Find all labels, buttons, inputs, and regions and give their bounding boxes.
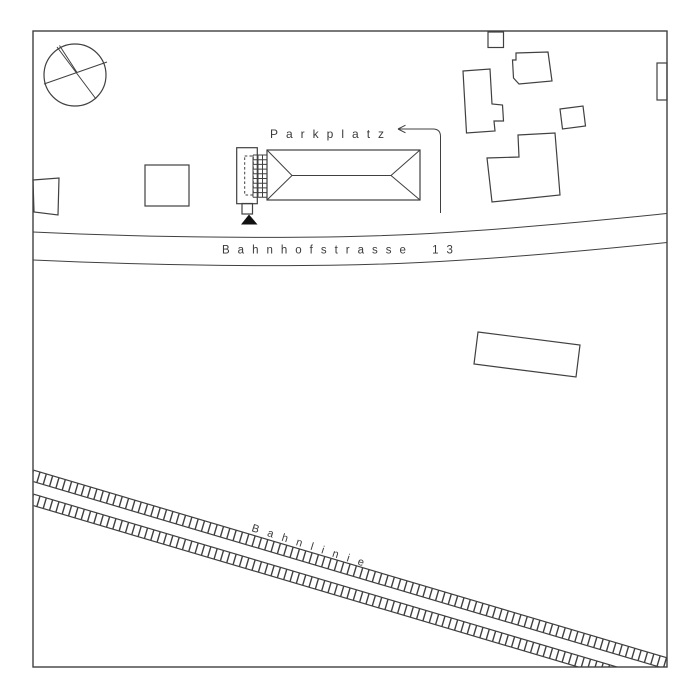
crossed-circle-icon	[44, 44, 107, 106]
annex-dashed-inner-outline	[245, 156, 254, 195]
site-plan-canvas: Parkplatz Bahnhofstrasse 13	[0, 0, 700, 700]
building-outline-square-west	[145, 165, 189, 206]
buildings-northeast	[463, 32, 667, 202]
building-outline-tiny-square-top	[488, 32, 504, 48]
railway-track-upper-icon	[30, 470, 672, 670]
building-outline-large-notched	[487, 133, 560, 202]
building-outline-l-shape	[463, 69, 504, 133]
parcel-outline-left	[33, 178, 59, 215]
entrance-marker-triangle-icon	[241, 215, 258, 225]
station-building	[237, 148, 420, 225]
hip-roof-lines	[267, 150, 420, 200]
site-plan-page: Parkplatz Bahnhofstrasse 13	[0, 0, 700, 700]
building-outline-small-square-east	[560, 106, 586, 129]
building-outline-notched-north	[513, 52, 553, 84]
street-bahnhofstrasse: Bahnhofstrasse 13	[33, 214, 667, 266]
street-label: Bahnhofstrasse 13	[222, 245, 461, 257]
building-outline-right-border	[657, 63, 667, 100]
railway	[30, 470, 672, 689]
building-outline-rotated-mid	[474, 332, 580, 377]
entrance-extension	[242, 204, 253, 215]
street-upper-edge	[33, 214, 667, 238]
railway-track-lower-icon	[30, 494, 656, 689]
hatch-grid	[253, 155, 267, 197]
parking-label: Parkplatz	[270, 127, 392, 141]
